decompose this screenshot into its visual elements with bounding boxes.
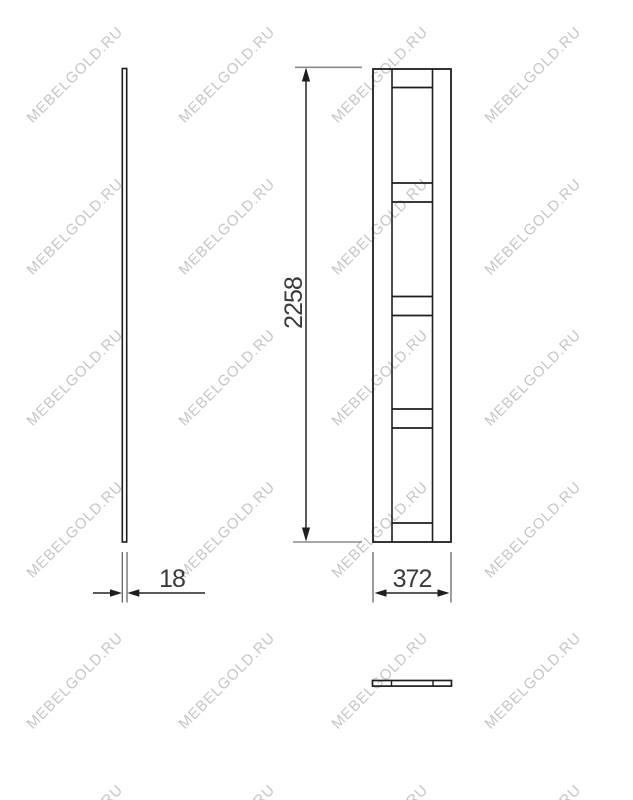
side-view-panel-edge	[122, 69, 126, 543]
front-view-outline	[373, 69, 451, 542]
thickness-arrow-left-icon	[127, 589, 139, 597]
width-arrow-right-icon	[438, 589, 450, 597]
front-view	[373, 69, 451, 542]
height-arrow-down-icon	[302, 528, 310, 542]
side-view	[122, 69, 126, 543]
top-view-outline	[373, 681, 452, 687]
width-dimension: 372	[373, 552, 451, 603]
technical-drawing-canvas: MEBELGOLD.RUMEBELGOLD.RUMEBELGOLD.RUMEBE…	[0, 0, 633, 800]
width-arrow-left-icon	[375, 589, 387, 597]
height-dimension: 2258	[280, 67, 362, 542]
top-view	[373, 681, 452, 687]
thickness-dimension-label: 18	[159, 565, 185, 593]
height-dimension-label: 2258	[280, 277, 308, 329]
thickness-arrow-right-icon	[110, 589, 122, 597]
drawing-svg: 2258 18	[0, 0, 633, 800]
thickness-dimension: 18	[93, 552, 205, 603]
height-arrow-up-icon	[302, 68, 310, 82]
width-dimension-label: 372	[393, 565, 432, 593]
